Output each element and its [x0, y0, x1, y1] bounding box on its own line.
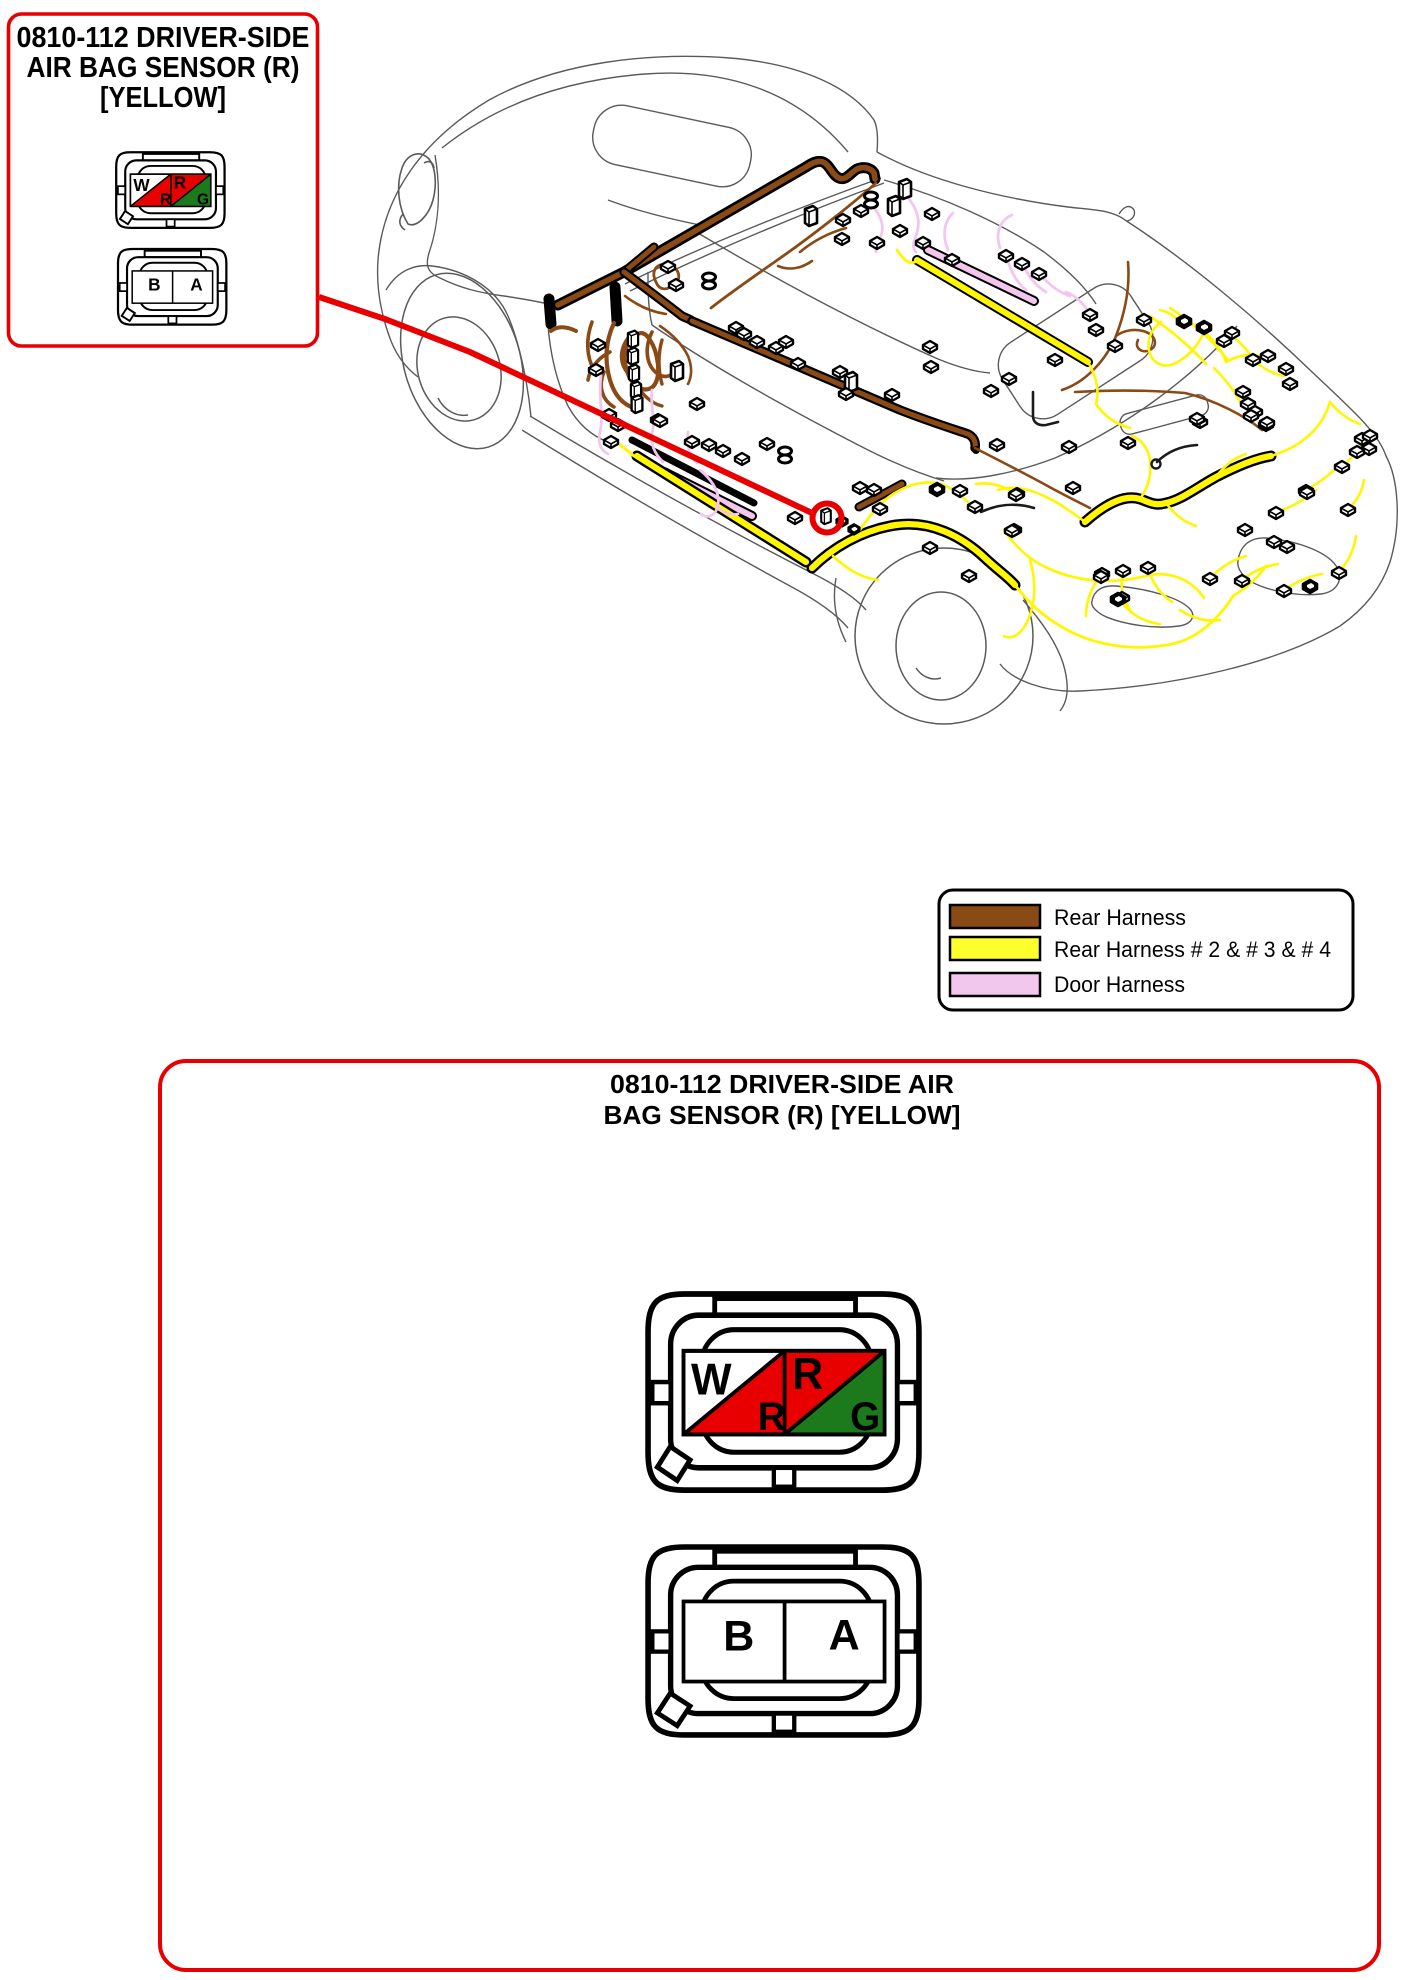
- svg-text:Rear Harness # 2 & # 3 & # 4: Rear Harness # 2 & # 3 & # 4: [1054, 937, 1331, 962]
- svg-text:Rear Harness: Rear Harness: [1054, 905, 1186, 930]
- svg-text:[YELLOW]: [YELLOW]: [100, 82, 226, 114]
- svg-text:Door Harness: Door Harness: [1054, 972, 1185, 997]
- svg-text:BAG SENSOR (R) [YELLOW]: BAG SENSOR (R) [YELLOW]: [604, 1100, 961, 1130]
- svg-text:0810-112 DRIVER-SIDE: 0810-112 DRIVER-SIDE: [17, 22, 310, 54]
- svg-text:AIR BAG SENSOR (R): AIR BAG SENSOR (R): [27, 52, 300, 84]
- svg-text:0810-112 DRIVER-SIDE AIR: 0810-112 DRIVER-SIDE AIR: [610, 1069, 954, 1099]
